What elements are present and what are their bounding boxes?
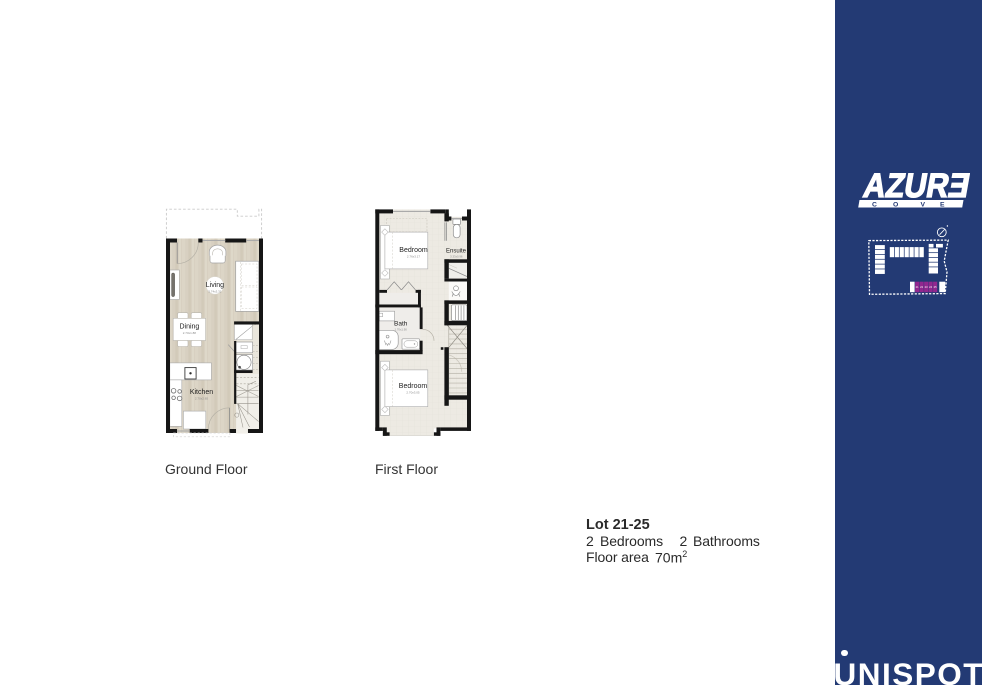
svg-text:AZUR: AZUR (861, 167, 953, 204)
svg-text:E: E (940, 201, 945, 208)
svg-text:O: O (893, 201, 898, 208)
svg-text:V: V (921, 201, 926, 208)
svg-text:C: C (872, 201, 877, 208)
